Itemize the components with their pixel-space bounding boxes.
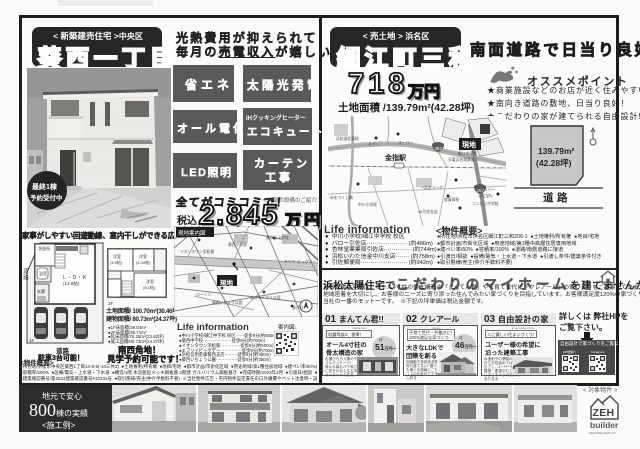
svg-text:ZEH: ZEH xyxy=(593,407,615,419)
svg-text:ZEHOME-MAIN-CT: ZEHOME-MAIN-CT xyxy=(590,431,616,435)
svg-text:builder: builder xyxy=(590,420,619,430)
svg-text:362: 362 xyxy=(435,146,443,151)
